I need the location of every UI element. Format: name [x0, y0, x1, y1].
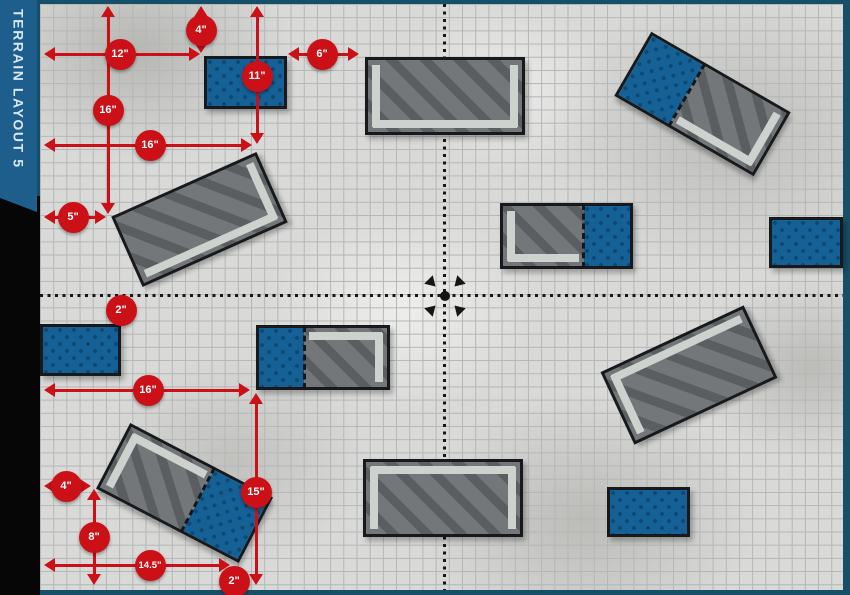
ruin-wall-top — [130, 433, 207, 478]
ruin-gray-top-center — [365, 57, 525, 135]
ruin-wall-left — [610, 373, 644, 434]
measurement-badge: 4" — [186, 15, 217, 46]
combo-divider-dashed — [582, 204, 585, 268]
measurement-arrowhead — [250, 6, 264, 17]
measurement-arrowhead — [44, 138, 55, 152]
measurement-badge: 15" — [241, 477, 272, 508]
center-marker-dot — [440, 291, 450, 301]
ruin-wall-right — [510, 65, 518, 127]
measurement-arrowhead — [44, 210, 55, 224]
measurement-arrowhead — [288, 47, 299, 61]
measurement-arrowhead — [241, 138, 252, 152]
combo-blue-section — [259, 328, 304, 387]
measurement-arrowhead — [101, 6, 115, 17]
combo-ruin-mid-center — [500, 203, 633, 269]
area-blue-left — [40, 324, 121, 376]
terrain-layout-diagram: 4"12"11"6"16"16"5"2"16"15"4"8"14.5"2" TE… — [0, 0, 850, 595]
ruin-wall-bottom — [676, 116, 754, 166]
measurement-badge: 4" — [51, 471, 82, 502]
layout-banner-ribbon: TERRAIN LAYOUT 5 — [0, 0, 37, 212]
combo-gray-section — [503, 206, 584, 266]
ruin-wall-right — [745, 112, 781, 166]
ruin-gray-bottom-right — [600, 305, 777, 444]
ruin-wall-top — [309, 332, 382, 340]
ruin-wall-left — [370, 467, 378, 529]
measurement-badge: 12" — [105, 39, 136, 70]
measurement-arrowhead — [189, 47, 200, 61]
left-shadow — [0, 196, 40, 595]
measurement-badge: 11" — [242, 61, 273, 92]
center-marker-arrow — [424, 301, 440, 317]
measurement-arrowhead — [249, 393, 263, 404]
map-scene: 4"12"11"6"16"16"5"2"16"15"4"8"14.5"2" — [0, 0, 850, 595]
measurement-badge: 16" — [133, 375, 164, 406]
measurement-arrowhead — [44, 383, 55, 397]
measurement-arrowhead — [250, 133, 264, 144]
measurement-badge: 16" — [135, 130, 166, 161]
layout-title: TERRAIN LAYOUT 5 — [11, 9, 27, 212]
measurement-badge: 6" — [307, 39, 338, 70]
measurement-arrowhead — [348, 47, 359, 61]
combo-divider-dashed — [303, 326, 306, 389]
area-blue-bottom-right — [607, 487, 690, 537]
ruin-wall-right — [508, 467, 516, 529]
area-blue-mid-right — [769, 217, 843, 268]
center-marker-arrow — [450, 301, 466, 317]
measurement-badge: 16" — [93, 95, 124, 126]
measurement-badge: 2" — [106, 295, 137, 326]
ruin-wall-bottom — [508, 254, 579, 262]
ruin-wall-right — [375, 333, 383, 382]
measurement-badge: 14.5" — [135, 550, 166, 581]
combo-ruin-mid-left — [256, 325, 390, 390]
ruin-wall-bottom — [144, 212, 278, 277]
measurement-arrowhead — [44, 47, 55, 61]
center-marker-arrow — [424, 275, 440, 291]
measurement-badge: 2" — [219, 566, 250, 595]
combo-blue-section — [584, 206, 630, 266]
measurement-badge: 5" — [58, 202, 89, 233]
ruin-gray-bottom-center — [363, 459, 523, 537]
measurement-arrowhead — [95, 210, 106, 224]
ruin-wall-left — [372, 65, 380, 127]
measurement-arrowhead — [249, 574, 263, 585]
measurement-arrowhead — [44, 558, 55, 572]
combo-gray-section — [304, 328, 387, 387]
ruin-wall-top — [371, 466, 515, 474]
combo-ruin-top-right — [614, 32, 790, 177]
center-marker-arrow — [450, 275, 466, 291]
measurement-arrowhead — [87, 489, 101, 500]
ruin-wall-bottom — [373, 120, 517, 128]
ruin-wall-top — [611, 315, 743, 382]
ruin-gray-mid-left — [111, 152, 288, 287]
measurement-badge: 8" — [79, 522, 110, 553]
ruin-wall-left — [106, 433, 140, 488]
measurement-arrowhead — [87, 574, 101, 585]
